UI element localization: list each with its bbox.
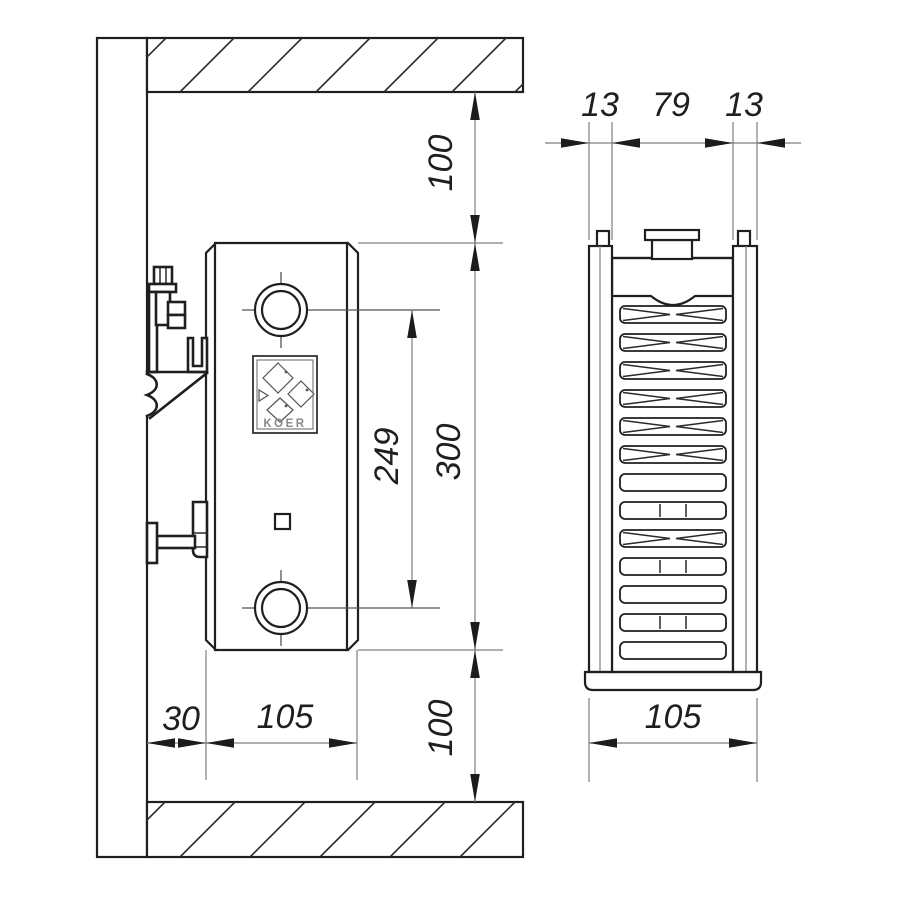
koer-logo-text: KOER	[263, 418, 306, 430]
dim-depth-front: 105	[645, 698, 702, 736]
left-plate-tab	[597, 231, 609, 247]
dim-panel-left: 13	[581, 86, 619, 124]
dim-front-depth-group: 105	[589, 698, 757, 782]
dim-core-width: 79	[652, 86, 690, 124]
pipe-stub	[652, 240, 692, 259]
upper-wall-bracket	[144, 267, 207, 418]
vent-square	[275, 514, 290, 529]
right-side-plate	[733, 246, 757, 672]
dim-top-widths-group: 13 79 13	[545, 86, 801, 240]
right-plate-tab	[738, 231, 750, 247]
upper-bracket-hook	[188, 338, 207, 372]
drawing-canvas: KOER 100 300 100	[0, 0, 900, 900]
dim-port-spacing: 249	[368, 428, 406, 486]
radiator-mounting-drawing: KOER 100 300 100	[0, 0, 900, 900]
dim-wall-offset: 30	[162, 700, 200, 738]
dim-top-clearance: 100	[422, 135, 460, 192]
lower-wall-bracket	[147, 502, 207, 563]
dim-port-spacing-group: 249	[368, 310, 417, 608]
dim-panel-right: 13	[725, 86, 763, 124]
dim-height: 300	[430, 424, 468, 481]
koer-logo: KOER	[253, 356, 317, 433]
fin-details	[623, 309, 723, 630]
brick-wall	[97, 38, 147, 857]
ceiling-slab	[112, 38, 569, 92]
dim-bottom-horizontal-group: 30 105	[147, 650, 357, 780]
logo-dot-2	[306, 389, 309, 392]
dim-depth-side: 105	[257, 698, 314, 736]
pipe-stub-flange	[645, 230, 699, 240]
floor-slab	[110, 802, 585, 857]
header-channel	[612, 258, 733, 305]
radiator-front-section	[585, 230, 761, 690]
convector-fins	[620, 306, 726, 659]
base-plate	[585, 672, 761, 690]
logo-dot-3	[285, 405, 288, 408]
logo-dot-1	[285, 371, 288, 374]
dim-bottom-clearance: 100	[422, 700, 460, 757]
